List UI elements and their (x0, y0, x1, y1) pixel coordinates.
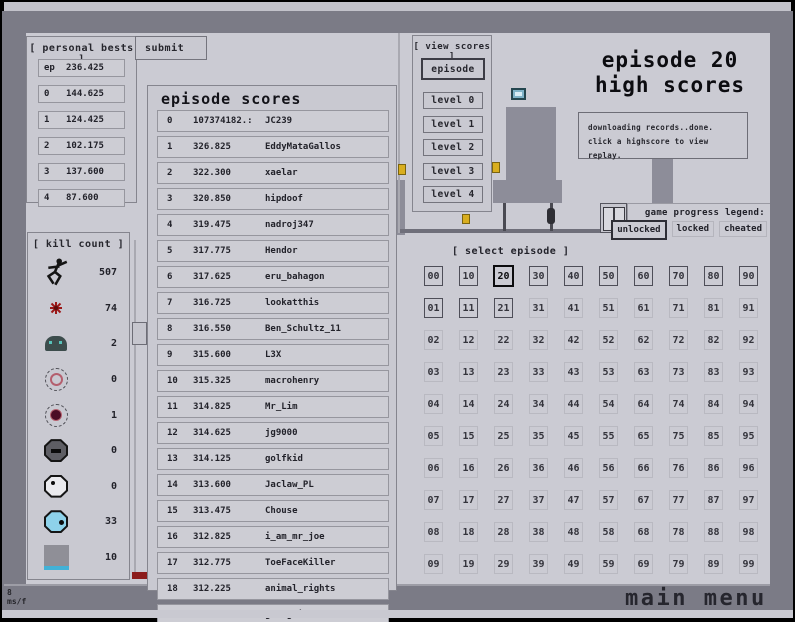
episode-cell-03[interactable]: 03 (424, 362, 443, 382)
highscore-player: Hendor (265, 246, 388, 256)
episode-cell-10[interactable]: 10 (459, 266, 478, 286)
episode-cell-50[interactable]: 50 (599, 266, 618, 286)
episode-cell-12[interactable]: 12 (459, 330, 478, 350)
episode-cell-65[interactable]: 65 (634, 426, 653, 446)
kill-count-row: 0 (32, 362, 125, 398)
highscore-rank: 5 (158, 246, 193, 256)
highscore-rank: 10 (158, 376, 193, 386)
page-title: episode 20 high scores (570, 48, 770, 98)
highscore-rank: 15 (158, 506, 193, 516)
episode-cell-89[interactable]: 89 (704, 554, 723, 574)
episode-cell-55[interactable]: 55 (599, 426, 618, 446)
gold-piece-icon (398, 164, 406, 175)
episode-cell-31[interactable]: 31 (529, 298, 548, 318)
kill-count-value: 1 (111, 410, 125, 421)
episode-cell-86[interactable]: 86 (704, 458, 723, 478)
highscore-score: 326.825 (193, 142, 265, 152)
kill-count-value: 2 (111, 338, 125, 349)
episode-cell-48[interactable]: 48 (564, 522, 583, 542)
highscore-player: i_am_mr_joe (265, 532, 388, 542)
episode-cell-57[interactable]: 57 (599, 490, 618, 510)
episode-cell-08[interactable]: 08 (424, 522, 443, 542)
highscore-row[interactable]: 7316.725lookatthis (157, 292, 389, 314)
highscore-row[interactable]: 15313.475Chouse (157, 500, 389, 522)
episode-cell-79[interactable]: 79 (669, 554, 688, 574)
episode-cell-77[interactable]: 77 (669, 490, 688, 510)
highscore-row[interactable]: 16312.825i_am_mr_joe (157, 526, 389, 548)
episode-cell-49[interactable]: 49 (564, 554, 583, 574)
ninja-icon (32, 257, 80, 289)
highscore-score: 316.725 (193, 298, 265, 308)
episode-cell-22[interactable]: 22 (494, 330, 513, 350)
highscore-player: lookatthis (265, 298, 388, 308)
episode-cell-23[interactable]: 23 (494, 362, 513, 382)
kill-count-panel: [ kill count ] 50774201003310 (27, 232, 130, 580)
view-scores-panel: [ view scores ] episode level 0level 1le… (412, 35, 492, 212)
episode-cell-33[interactable]: 33 (529, 362, 548, 382)
highscore-row[interactable]: 8316.550Ben_Schultz_11 (157, 318, 389, 340)
pb-value: 137.600 (66, 167, 104, 177)
episode-cell-36[interactable]: 36 (529, 458, 548, 478)
highscore-rank: 18 (158, 584, 193, 594)
highscore-score: 107374182.: (193, 116, 265, 126)
episode-cell-58[interactable]: 58 (599, 522, 618, 542)
highscore-score: 313.475 (193, 506, 265, 516)
highscore-row[interactable]: 0107374182.:JC239 (157, 110, 389, 132)
episode-cell-59[interactable]: 59 (599, 554, 618, 574)
highscore-score: 314.125 (193, 454, 265, 464)
personal-best-row: 1124.425 (38, 111, 125, 129)
episode-cell-85[interactable]: 85 (704, 426, 723, 446)
episode-cell-30[interactable]: 30 (529, 266, 548, 286)
legend-label: game progress legend: (645, 208, 765, 218)
episode-cell-75[interactable]: 75 (669, 426, 688, 446)
highscore-rank: 13 (158, 454, 193, 464)
episode-cell-14[interactable]: 14 (459, 394, 478, 414)
episode-cell-46[interactable]: 46 (564, 458, 583, 478)
episode-cell-83[interactable]: 83 (704, 362, 723, 382)
view-level-4-button[interactable]: level 4 (423, 186, 483, 203)
episode-cell-40[interactable]: 40 (564, 266, 583, 286)
view-level-0-button[interactable]: level 0 (423, 92, 483, 109)
episode-cell-13[interactable]: 13 (459, 362, 478, 382)
kill-count-row: 74 (32, 291, 125, 327)
view-level-buttons: level 0level 1level 2level 3level 4 (423, 92, 483, 203)
episode-cell-88[interactable]: 88 (704, 522, 723, 542)
kill-count-row: 507 (32, 255, 125, 291)
episode-cell-95[interactable]: 95 (739, 426, 758, 446)
pb-label: 4 (39, 193, 66, 203)
highscore-score: 314.825 (193, 402, 265, 412)
pb-value: 144.625 (66, 89, 104, 99)
kill-count-row: 33 (32, 504, 125, 540)
episode-cell-25[interactable]: 25 (494, 426, 513, 446)
red-drone-icon (132, 572, 148, 579)
episode-cell-11[interactable]: 11 (459, 298, 478, 318)
orb-drone-icon (32, 404, 80, 427)
select-episode-header: [ select episode ] (452, 246, 569, 257)
submit-button[interactable]: submit (135, 36, 207, 60)
highscores-screen: [ personal bests ] ep236.4250144.6251124… (0, 0, 795, 622)
pb-label: 0 (39, 89, 66, 99)
episode-cell-29[interactable]: 29 (494, 554, 513, 574)
episode-cell-53[interactable]: 53 (599, 362, 618, 382)
episode-cell-45[interactable]: 45 (564, 426, 583, 446)
highscore-row[interactable]: 17312.775ToeFaceKiller (157, 552, 389, 574)
episode-cell-38[interactable]: 38 (529, 522, 548, 542)
highscore-row[interactable]: 18312.225animal_rights (157, 578, 389, 600)
episode-cell-68[interactable]: 68 (634, 522, 653, 542)
pb-label: ep (39, 63, 66, 73)
episode-cell-51[interactable]: 51 (599, 298, 618, 318)
highscore-score: 312.775 (193, 558, 265, 568)
page-title-line2: high scores (570, 73, 770, 98)
episode-cell-27[interactable]: 27 (494, 490, 513, 510)
episode-cell-05[interactable]: 05 (424, 426, 443, 446)
episode-cell-21[interactable]: 21 (494, 298, 513, 318)
highscore-player: jg9000 (265, 428, 388, 438)
episode-cell-73[interactable]: 73 (669, 362, 688, 382)
highscore-player: nadroj347 (265, 220, 388, 230)
pb-value: 236.425 (66, 63, 104, 73)
highscore-row[interactable]: 5317.775Hendor (157, 240, 389, 262)
highscore-rank: 8 (158, 324, 193, 334)
episode-cell-78[interactable]: 78 (669, 522, 688, 542)
kill-count-value: 0 (111, 445, 125, 456)
episode-cell-32[interactable]: 32 (529, 330, 548, 350)
personal-best-row: 0144.625 (38, 85, 125, 103)
kill-count-value: 507 (99, 267, 125, 278)
highscore-rank: 4 (158, 220, 193, 230)
episode-cell-34[interactable]: 34 (529, 394, 548, 414)
white-octagon-icon (32, 475, 80, 498)
episode-cell-06[interactable]: 06 (424, 458, 443, 478)
highscore-row[interactable]: 12314.625jg9000 (157, 422, 389, 444)
episode-cell-93[interactable]: 93 (739, 362, 758, 382)
episode-cell-74[interactable]: 74 (669, 394, 688, 414)
view-level-1-button[interactable]: level 1 (423, 116, 483, 133)
blue-block-icon (511, 88, 526, 100)
highscore-score: 313.600 (193, 480, 265, 490)
episode-scores-list: 0107374182.:JC2391326.825EddyMataGallos2… (157, 110, 389, 622)
episode-cell-62[interactable]: 62 (634, 330, 653, 350)
episode-cell-20[interactable]: 20 (493, 265, 514, 287)
episode-cell-70[interactable]: 70 (669, 266, 688, 286)
door-icon (503, 203, 506, 231)
episode-cell-87[interactable]: 87 (704, 490, 723, 510)
view-episode-button[interactable]: episode (421, 58, 485, 80)
mine-icon (32, 301, 80, 315)
highscore-rank: 6 (158, 272, 193, 282)
kill-count-row: 10 (32, 540, 125, 576)
gold-piece-icon (492, 162, 500, 173)
episode-cell-80[interactable]: 80 (704, 266, 723, 286)
highscore-score: 315.325 (193, 376, 265, 386)
episode-scores-panel: episode scores 0107374182.:JC2391326.825… (147, 85, 397, 591)
episode-cell-99[interactable]: 99 (739, 554, 758, 574)
episode-cell-26[interactable]: 26 (494, 458, 513, 478)
highscore-player: ToeFaceKiller (265, 558, 388, 568)
highscore-rank: 0 (158, 116, 193, 126)
highscore-row[interactable]: 1326.825EddyMataGallos (157, 136, 389, 158)
highscore-rank: 1 (158, 142, 193, 152)
highscore-row[interactable]: 9315.600L3X (157, 344, 389, 366)
kill-count-header: [ kill count ] (28, 239, 129, 250)
highscore-player: animal_rights (265, 584, 388, 594)
highscore-score: 322.300 (193, 168, 265, 178)
episode-cell-67[interactable]: 67 (634, 490, 653, 510)
pb-value: 124.425 (66, 115, 104, 125)
episode-grid: 0010203040506070809001112131415161718191… (424, 266, 758, 574)
episode-cell-18[interactable]: 18 (459, 522, 478, 542)
highscore-player: Mr_Lim (265, 402, 388, 412)
highscore-rank: 17 (158, 558, 193, 568)
personal-best-row: 487.600 (38, 189, 125, 207)
highscore-player: macrohenry (265, 376, 388, 386)
highscore-player: JC239 (265, 116, 388, 126)
highscore-row[interactable]: 2322.300xaelar (157, 162, 389, 184)
episode-cell-82[interactable]: 82 (704, 330, 723, 350)
kill-count-value: 0 (111, 374, 125, 385)
kill-count-row: 0 (32, 433, 125, 469)
highscore-score: 317.625 (193, 272, 265, 282)
episode-cell-63[interactable]: 63 (634, 362, 653, 382)
pb-label: 3 (39, 167, 66, 177)
main-menu-button[interactable]: main menu (625, 586, 767, 611)
episode-scores-title: episode scores (161, 90, 301, 108)
window-bottom-strip (2, 610, 793, 618)
highscore-rank: 14 (158, 480, 193, 490)
dark-octagon-icon (32, 439, 80, 462)
highscore-player: Chouse (265, 506, 388, 516)
episode-cell-42[interactable]: 42 (564, 330, 583, 350)
highscore-row[interactable]: 14313.600Jaclaw_PL (157, 474, 389, 496)
kill-count-value: 0 (111, 481, 125, 492)
episode-cell-44[interactable]: 44 (564, 394, 583, 414)
highscore-rank: 16 (158, 532, 193, 542)
episode-cell-28[interactable]: 28 (494, 522, 513, 542)
highscore-rank: 11 (158, 402, 193, 412)
episode-cell-35[interactable]: 35 (529, 426, 548, 446)
episode-cell-81[interactable]: 81 (704, 298, 723, 318)
episode-cell-56[interactable]: 56 (599, 458, 618, 478)
highscore-rank: 2 (158, 168, 193, 178)
episode-cell-54[interactable]: 54 (599, 394, 618, 414)
kill-count-row: 2 (32, 326, 125, 362)
level-wall (493, 180, 562, 203)
episode-cell-96[interactable]: 96 (739, 458, 758, 478)
episode-cell-92[interactable]: 92 (739, 330, 758, 350)
level-left-wall (4, 33, 26, 586)
episode-cell-15[interactable]: 15 (459, 426, 478, 446)
page-title-line1: episode 20 (570, 48, 770, 73)
view-level-2-button[interactable]: level 2 (423, 139, 483, 156)
cyan-octagon-icon (32, 510, 80, 533)
episode-cell-43[interactable]: 43 (564, 362, 583, 382)
episode-cell-09[interactable]: 09 (424, 554, 443, 574)
pb-value: 87.600 (66, 193, 99, 203)
personal-bests-panel: [ personal bests ] ep236.4250144.6251124… (26, 36, 137, 203)
episode-cell-17[interactable]: 17 (459, 490, 478, 510)
episode-cell-61[interactable]: 61 (634, 298, 653, 318)
highscore-player: xaelar (265, 168, 388, 178)
personal-best-row: 2102.175 (38, 137, 125, 155)
episode-cell-16[interactable]: 16 (459, 458, 478, 478)
seeker-drone-icon (32, 368, 80, 391)
highscore-row[interactable]: 13314.125golfkid (157, 448, 389, 470)
episode-cell-00[interactable]: 00 (424, 266, 443, 286)
kill-count-value: 74 (105, 303, 125, 314)
status-line: downloading records..done. (588, 121, 738, 135)
highscore-rank: 9 (158, 350, 193, 360)
episode-cell-01[interactable]: 01 (424, 298, 443, 318)
highscore-row[interactable]: 10315.325macrohenry (157, 370, 389, 392)
turret-icon (32, 545, 80, 570)
highscore-player: eru_bahagon (265, 272, 388, 282)
pb-label: 1 (39, 115, 66, 125)
episode-cell-76[interactable]: 76 (669, 458, 688, 478)
pb-label: 2 (39, 141, 66, 151)
locked-door-switch-icon (547, 208, 555, 224)
highscore-score: 316.550 (193, 324, 265, 334)
highscore-row[interactable]: 11314.825Mr_Lim (157, 396, 389, 418)
episode-cell-47[interactable]: 47 (564, 490, 583, 510)
episode-cell-02[interactable]: 02 (424, 330, 443, 350)
episode-cell-91[interactable]: 91 (739, 298, 758, 318)
highscore-score: 317.775 (193, 246, 265, 256)
highscore-player: EddyMataGallos (265, 142, 388, 152)
episode-cell-94[interactable]: 94 (739, 394, 758, 414)
episode-cell-84[interactable]: 84 (704, 394, 723, 414)
kill-count-row: 1 (32, 397, 125, 433)
highscore-score: 320.850 (193, 194, 265, 204)
door-icon (132, 322, 147, 345)
highscore-row[interactable]: 4319.475nadroj347 (157, 214, 389, 236)
pb-value: 102.175 (66, 141, 104, 151)
episode-cell-19[interactable]: 19 (459, 554, 478, 574)
highscore-player: L3X (265, 350, 388, 360)
highscore-player: hipdoof (265, 194, 388, 204)
highscore-rank: 7 (158, 298, 193, 308)
robot-icon (32, 336, 80, 351)
episode-cell-07[interactable]: 07 (424, 490, 443, 510)
episode-cell-71[interactable]: 71 (669, 298, 688, 318)
highscore-score: 312.825 (193, 532, 265, 542)
episode-cell-39[interactable]: 39 (529, 554, 548, 574)
highscore-rank: 3 (158, 194, 193, 204)
episode-cell-64[interactable]: 64 (634, 394, 653, 414)
personal-bests-list: ep236.4250144.6251124.4252102.1753137.60… (38, 59, 125, 207)
episode-cell-04[interactable]: 04 (424, 394, 443, 414)
highscore-player: golfkid (265, 454, 388, 464)
episode-cell-69[interactable]: 69 (634, 554, 653, 574)
level-wall (506, 107, 556, 180)
level-wall-line (398, 33, 400, 233)
window-top-strip (4, 2, 791, 11)
gold-piece-icon (462, 214, 470, 224)
level-wall-line (134, 240, 136, 573)
status-line: click a highscore to view replay. (588, 135, 738, 163)
highscore-score: 319.475 (193, 220, 265, 230)
episode-cell-37[interactable]: 37 (529, 490, 548, 510)
highscore-player: Jaclaw_PL (265, 480, 388, 490)
episode-cell-66[interactable]: 66 (634, 458, 653, 478)
episode-cell-72[interactable]: 72 (669, 330, 688, 350)
highscore-score: 315.600 (193, 350, 265, 360)
episode-cell-24[interactable]: 24 (494, 394, 513, 414)
frame-time-readout: 8 ms/f (7, 588, 26, 606)
highscore-score: 312.225 (193, 584, 265, 594)
kill-count-value: 10 (105, 552, 125, 563)
episode-cell-90[interactable]: 90 (739, 266, 758, 286)
highscore-player: Ben_Schultz_11 (265, 324, 388, 334)
highscore-row[interactable]: 3320.850hipdoof (157, 188, 389, 210)
view-level-3-button[interactable]: level 3 (423, 163, 483, 180)
episode-cell-41[interactable]: 41 (564, 298, 583, 318)
highscore-rank: 12 (158, 428, 193, 438)
kill-count-row: 0 (32, 468, 125, 504)
highscore-score: 314.625 (193, 428, 265, 438)
select-episode-area: [ select episode ] 001020304050607080900… (400, 233, 770, 586)
episode-cell-98[interactable]: 98 (739, 522, 758, 542)
highscore-row[interactable]: 6317.625eru_bahagon (157, 266, 389, 288)
kill-count-list: 50774201003310 (32, 255, 125, 575)
personal-best-row: ep236.425 (38, 59, 125, 77)
kill-count-value: 33 (105, 516, 125, 527)
episode-cell-52[interactable]: 52 (599, 330, 618, 350)
status-message-box: downloading records..done. click a highs… (578, 112, 748, 159)
episode-cell-60[interactable]: 60 (634, 266, 653, 286)
personal-best-row: 3137.600 (38, 163, 125, 181)
episode-cell-97[interactable]: 97 (739, 490, 758, 510)
